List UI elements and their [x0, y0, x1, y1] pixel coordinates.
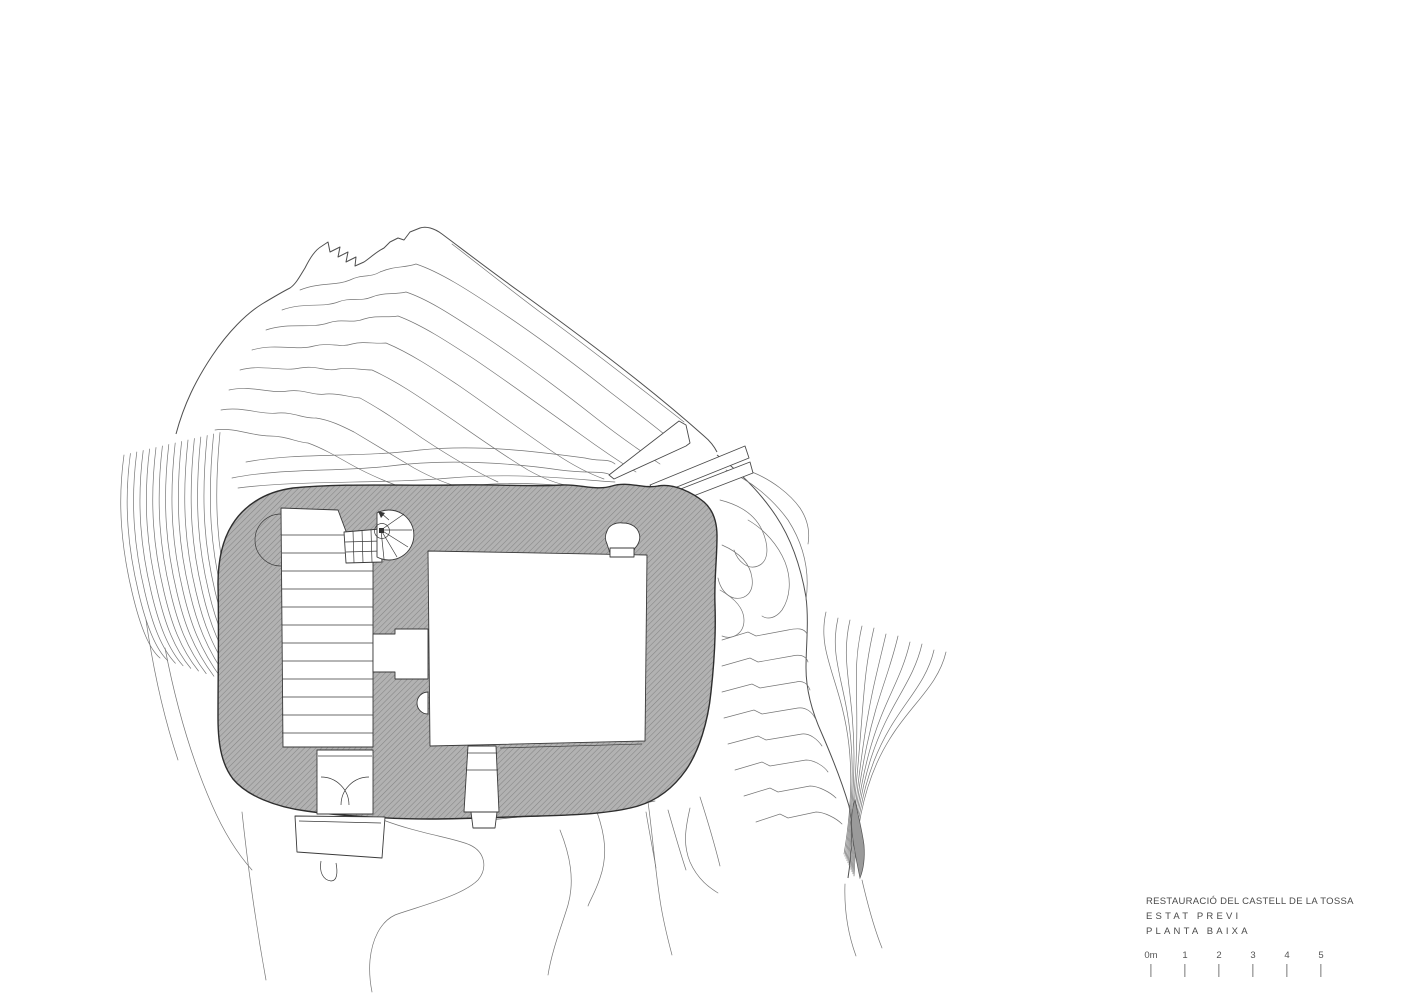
- phase-label: ESTAT PREVI: [1146, 911, 1354, 922]
- scale-tick-0: 0m: [1144, 951, 1157, 977]
- scale-tick-4: 4: [1284, 951, 1289, 977]
- great-hall-room: [428, 551, 647, 746]
- terrain-hill-top: [176, 227, 717, 489]
- scale-tick-mark: [1150, 964, 1151, 977]
- scale-label-5: 5: [1318, 950, 1323, 961]
- terrain-fan-right: [824, 612, 946, 876]
- scale-label-1: 1: [1182, 950, 1187, 961]
- scale-tick-2: 2: [1216, 951, 1221, 977]
- castle-interior: [255, 508, 647, 881]
- scale-label-0: 0m: [1144, 950, 1157, 961]
- sheet-label: PLANTA BAIXA: [1146, 926, 1354, 937]
- scale-tick-mark: [1218, 964, 1219, 977]
- scale-label-2: 2: [1216, 950, 1221, 961]
- doorway-west: [373, 629, 428, 679]
- south-passage: [464, 746, 499, 812]
- scale-label-4: 4: [1284, 950, 1289, 961]
- spiral-newel: [379, 528, 384, 533]
- scale-tick-5: 5: [1318, 951, 1323, 977]
- scale-tick-3: 3: [1250, 951, 1255, 977]
- scale-tick-mark: [1252, 964, 1253, 977]
- plan-drawing: [0, 0, 1414, 1000]
- project-title: RESTAURACIÓ DEL CASTELL DE LA TOSSA: [1146, 896, 1354, 907]
- title-block: RESTAURACIÓ DEL CASTELL DE LA TOSSA ESTA…: [1146, 896, 1354, 937]
- scale-tick-1: 1: [1182, 951, 1187, 977]
- scale-bar: 0m 1 2 3 4 5: [1146, 951, 1346, 985]
- platform-hook: [320, 861, 336, 881]
- terrain-bottom: [370, 801, 718, 992]
- scale-label-3: 3: [1250, 950, 1255, 961]
- scale-tick-mark: [1320, 964, 1321, 977]
- drawing-sheet: RESTAURACIÓ DEL CASTELL DE LA TOSSA ESTA…: [0, 0, 1414, 1000]
- main-entrance: [317, 750, 373, 814]
- scale-tick-mark: [1184, 964, 1185, 977]
- scale-tick-mark: [1286, 964, 1287, 977]
